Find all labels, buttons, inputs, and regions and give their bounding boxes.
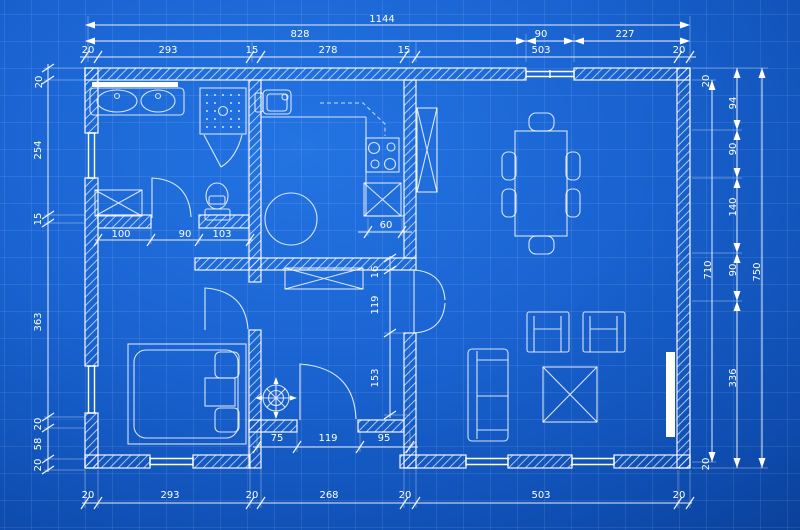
bathroom-door bbox=[152, 178, 191, 218]
dimension-label: 20 bbox=[701, 458, 712, 471]
dining-table bbox=[515, 131, 567, 236]
living-double-door bbox=[414, 270, 445, 333]
armchair bbox=[583, 312, 625, 352]
blueprint-canvas: 1144828902272029315278155032020254153632… bbox=[0, 0, 800, 530]
window-bottom-left bbox=[150, 457, 193, 466]
wall-bottom-right-c bbox=[614, 455, 690, 468]
wall-bottom-right-b bbox=[508, 455, 572, 468]
wall-bathroom-bottom-a bbox=[98, 215, 151, 228]
wall-top-right bbox=[574, 68, 690, 80]
dimension-label: 278 bbox=[318, 45, 337, 56]
dimension-label: 103 bbox=[212, 229, 231, 240]
wall-bottom-left-a bbox=[85, 455, 150, 468]
dimension-label: 20 bbox=[701, 75, 712, 88]
dimension-label: 20 bbox=[34, 76, 45, 89]
dimension-label: 20 bbox=[33, 459, 44, 472]
dimension-label: 336 bbox=[728, 368, 739, 387]
dimension-label: 503 bbox=[531, 45, 550, 56]
dining-chair bbox=[566, 189, 580, 217]
window-top bbox=[526, 70, 574, 78]
dimension-label: 828 bbox=[290, 29, 309, 40]
floor-plan-drawing: 1144828902272029315278155032020254153632… bbox=[0, 0, 800, 530]
dimension-label: 60 bbox=[380, 220, 393, 231]
dining-chair bbox=[566, 152, 580, 180]
dimension-label: 254 bbox=[33, 140, 44, 159]
dimension-label: 20 bbox=[33, 418, 44, 431]
round-table bbox=[265, 193, 317, 245]
dimension-label: 15 bbox=[398, 45, 411, 56]
upper-cabinets-dashed bbox=[320, 103, 385, 136]
dimension-label: 20 bbox=[399, 490, 412, 501]
dining-chair bbox=[529, 236, 554, 254]
dining-table-set bbox=[502, 113, 580, 254]
dimension-label: 95 bbox=[378, 433, 391, 444]
dimension-label: 90 bbox=[728, 143, 739, 156]
dimension-label: 363 bbox=[33, 312, 44, 331]
dimension-label: 20 bbox=[673, 45, 686, 56]
bathroom-vanity bbox=[90, 82, 184, 115]
mattress bbox=[134, 350, 238, 438]
shower bbox=[200, 88, 246, 134]
bathroom-cabinet bbox=[95, 190, 142, 216]
dimension-label: 20 bbox=[246, 490, 259, 501]
dimension-label: 16 bbox=[370, 266, 381, 279]
pillow bbox=[215, 352, 239, 378]
dimension-label: 1144 bbox=[369, 14, 394, 25]
pillow bbox=[215, 408, 239, 432]
wall-bottom-left-b bbox=[193, 455, 250, 468]
dimension-label: 710 bbox=[703, 260, 714, 279]
dimension-label: 268 bbox=[319, 490, 338, 501]
dimension-label: 90 bbox=[728, 264, 739, 277]
window-bottom-right-2 bbox=[572, 457, 614, 466]
bathroom-mirror bbox=[92, 82, 178, 87]
dimension-label: 293 bbox=[158, 45, 177, 56]
dimension-label: 90 bbox=[535, 29, 548, 40]
dimension-label: 140 bbox=[728, 197, 739, 216]
dimension-label: 750 bbox=[752, 262, 763, 281]
dimension-label: 293 bbox=[160, 490, 179, 501]
dimension-label: 227 bbox=[615, 29, 634, 40]
doors bbox=[152, 135, 445, 420]
dimension-label: 503 bbox=[531, 490, 550, 501]
bed-frame bbox=[128, 344, 246, 444]
bedroom-door bbox=[205, 288, 248, 330]
wall-hall-bottom-a bbox=[249, 420, 297, 432]
kitchen-lower-unit bbox=[364, 183, 401, 216]
dimension-label: 75 bbox=[271, 433, 284, 444]
dining-chair bbox=[529, 113, 554, 131]
window-right-bar bbox=[666, 352, 675, 437]
tall-wardrobe bbox=[417, 108, 437, 192]
dimension-label: 15 bbox=[33, 213, 44, 226]
sofa bbox=[468, 349, 508, 441]
bedside-table bbox=[205, 378, 235, 406]
dimension-label: 119 bbox=[370, 295, 381, 314]
dimension-label: 20 bbox=[82, 45, 95, 56]
stove bbox=[366, 138, 399, 172]
dimension-label: 153 bbox=[370, 368, 381, 387]
dimension-label: 119 bbox=[318, 433, 337, 444]
wall-top-left bbox=[85, 68, 526, 80]
shower-drain bbox=[219, 107, 228, 116]
wall-left-upper bbox=[85, 68, 98, 133]
wall-bathroom-bottom-b bbox=[199, 215, 249, 228]
wall-right bbox=[677, 68, 690, 468]
bed bbox=[128, 344, 246, 444]
dimension-label: 20 bbox=[673, 490, 686, 501]
dimension-label: 90 bbox=[179, 229, 192, 240]
window-bottom-right-1 bbox=[466, 457, 508, 466]
dimension-label: 94 bbox=[728, 97, 739, 110]
wall-hall-bottom-b bbox=[358, 420, 404, 432]
dimension-label: 15 bbox=[246, 45, 259, 56]
shower-door bbox=[204, 135, 242, 167]
dining-chair bbox=[502, 152, 516, 180]
dimension-label: 100 bbox=[111, 229, 130, 240]
coffee-table bbox=[543, 367, 597, 422]
entry-door bbox=[300, 364, 356, 420]
dimension-label: 20 bbox=[82, 490, 95, 501]
walls bbox=[85, 68, 690, 468]
wall-left-middle bbox=[85, 178, 98, 366]
wall-kitchen-right bbox=[404, 80, 416, 258]
hall-wardrobe bbox=[285, 268, 363, 289]
armchair bbox=[527, 312, 569, 352]
dining-chair bbox=[502, 189, 516, 217]
window-left-lower bbox=[87, 366, 96, 413]
window-left-upper bbox=[87, 133, 96, 178]
dimension-label: 58 bbox=[33, 438, 44, 451]
